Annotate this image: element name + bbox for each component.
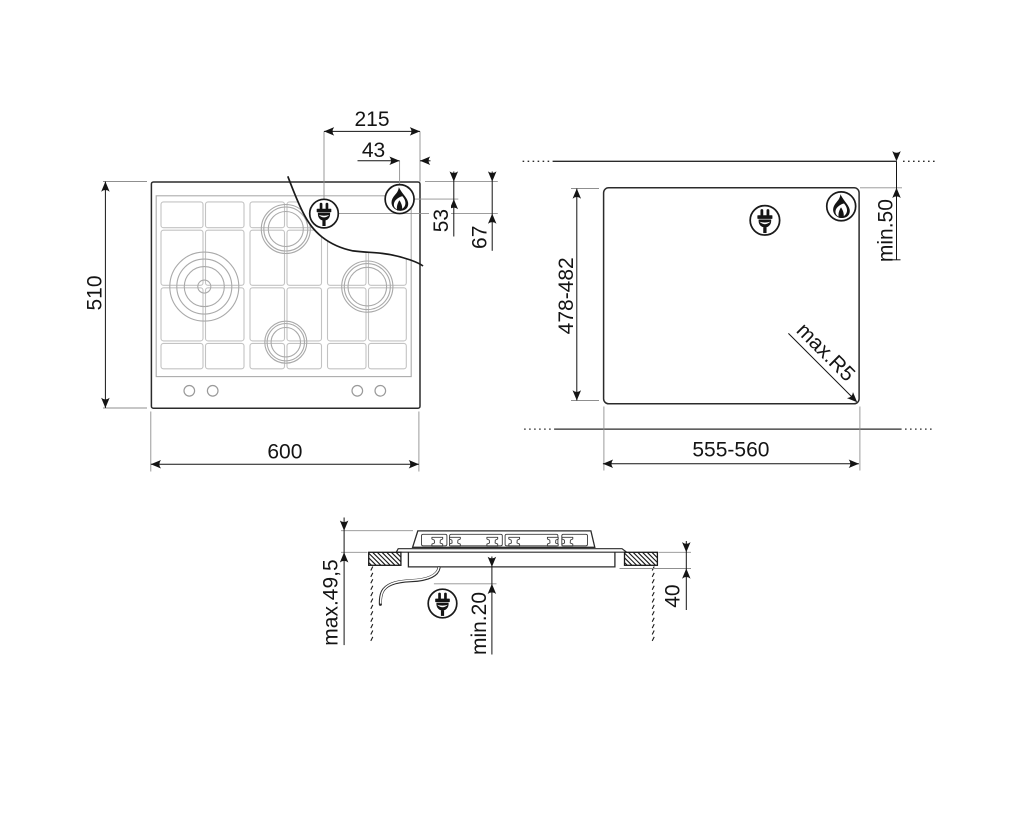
svg-text:67: 67 xyxy=(468,226,491,249)
svg-text:max.49,5: max.49,5 xyxy=(319,559,342,645)
svg-text:510: 510 xyxy=(84,275,107,310)
svg-text:555-560: 555-560 xyxy=(692,439,769,462)
svg-text:min.20: min.20 xyxy=(468,592,491,655)
svg-text:53: 53 xyxy=(430,209,453,232)
svg-text:40: 40 xyxy=(662,584,685,607)
svg-text:43: 43 xyxy=(362,139,385,162)
svg-text:600: 600 xyxy=(267,441,302,464)
svg-text:min.50: min.50 xyxy=(874,199,897,262)
svg-text:215: 215 xyxy=(354,108,389,131)
svg-text:478-482: 478-482 xyxy=(555,257,578,334)
